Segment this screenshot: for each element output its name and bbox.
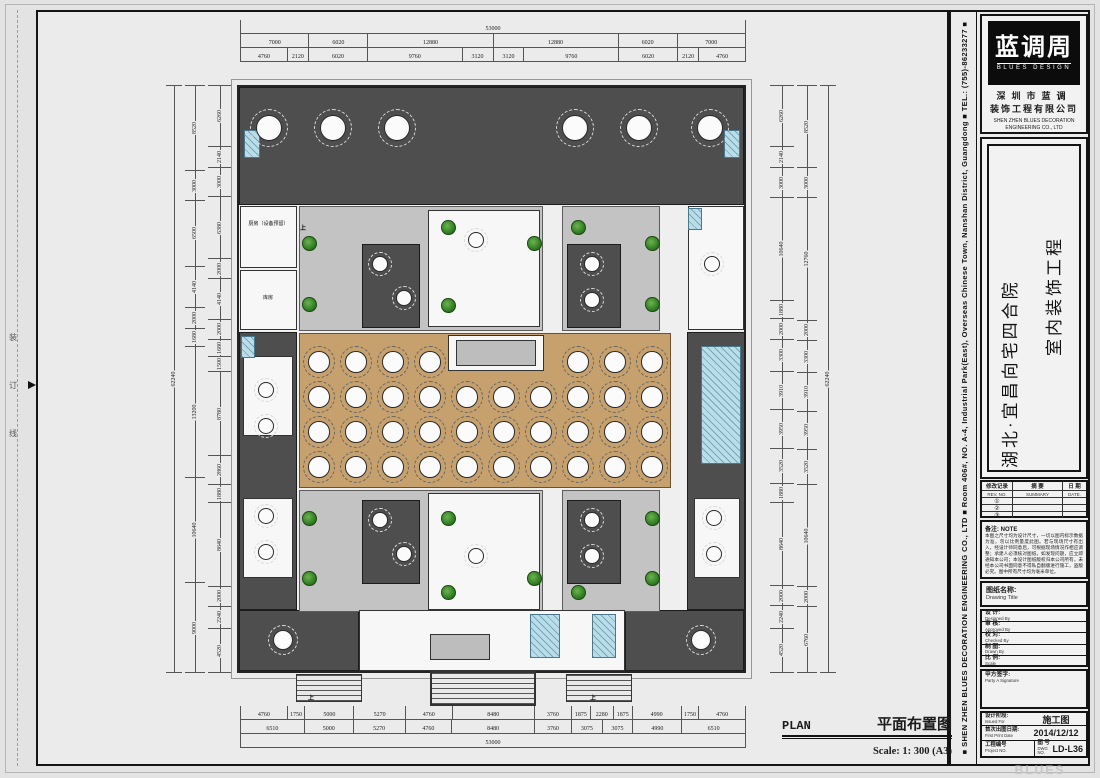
banquet-table: [700, 252, 724, 276]
banquet-table: [303, 346, 335, 378]
room-label: 厨房（设备预留）: [242, 222, 295, 228]
banquet-table: [562, 381, 594, 413]
table-top: [604, 421, 626, 443]
bathroom-east: [688, 208, 702, 230]
table-top: [530, 456, 552, 478]
table-top: [562, 115, 588, 141]
entrance-stairs: [430, 671, 536, 706]
banquet-table: [377, 451, 409, 483]
banquet-table: [340, 346, 372, 378]
banquet-table: [636, 416, 668, 448]
banquet-table: [368, 252, 392, 276]
table-top: [691, 630, 711, 650]
banquet-table: [340, 416, 372, 448]
table-top: [584, 548, 600, 564]
table-top: [372, 512, 388, 528]
banquet-table: [340, 381, 372, 413]
table-top: [384, 115, 410, 141]
banquet-table: [488, 451, 520, 483]
table-top: [419, 351, 441, 373]
table-top: [419, 386, 441, 408]
banquet-table: [451, 451, 483, 483]
banquet-table: [636, 346, 668, 378]
banquet-table: [562, 346, 594, 378]
lobby-feature: [430, 634, 490, 660]
banquet-table: [464, 544, 488, 568]
table-top: [567, 351, 589, 373]
entrance-lobby: [359, 610, 625, 671]
room-label: 上: [306, 696, 316, 703]
banquet-table: [599, 416, 631, 448]
banquet-table: [599, 451, 631, 483]
banquet-table: [691, 109, 729, 147]
banquet-table: [268, 625, 298, 655]
plant: [302, 511, 317, 526]
table-top: [258, 544, 274, 560]
banquet-table: [599, 346, 631, 378]
table-top: [641, 421, 663, 443]
rooms-south-west: [239, 610, 359, 671]
banquet-table: [599, 381, 631, 413]
banquet-table: [464, 228, 488, 252]
plant: [645, 297, 660, 312]
table-top: [641, 386, 663, 408]
banquet-table: [525, 381, 557, 413]
banquet-table: [580, 288, 604, 312]
floor-plan: 厨房（设备预留）库房上上上: [0, 0, 1100, 778]
table-top: [419, 421, 441, 443]
banquet-table: [580, 508, 604, 532]
table-top: [641, 351, 663, 373]
table-top: [345, 386, 367, 408]
banquet-table: [377, 416, 409, 448]
east-service-wet-area: [701, 346, 741, 464]
table-top: [256, 115, 282, 141]
table-top: [468, 548, 484, 564]
banquet-table: [556, 109, 594, 147]
plant: [571, 585, 586, 600]
table-top: [641, 456, 663, 478]
table-top: [308, 386, 330, 408]
plant: [441, 511, 456, 526]
bathroom-lobby-1: [530, 614, 560, 658]
banquet-table: [451, 381, 483, 413]
plant: [441, 220, 456, 235]
table-top: [567, 386, 589, 408]
banquet-table: [525, 416, 557, 448]
banquet-table: [636, 451, 668, 483]
room-label: 库房: [248, 296, 288, 302]
table-top: [584, 256, 600, 272]
bathroom-west: [241, 336, 255, 358]
banquet-table: [392, 542, 416, 566]
table-top: [493, 421, 515, 443]
plant: [302, 571, 317, 586]
room-label: 上: [588, 696, 598, 703]
bathroom-lobby-2: [592, 614, 616, 658]
banquet-table: [378, 109, 416, 147]
table-top: [372, 256, 388, 272]
table-top: [584, 512, 600, 528]
banquet-table: [254, 540, 278, 564]
room-label: 上: [299, 226, 307, 233]
banquet-table: [392, 286, 416, 310]
banquet-table: [488, 416, 520, 448]
table-top: [567, 456, 589, 478]
table-top: [530, 386, 552, 408]
table-top: [345, 351, 367, 373]
table-top: [382, 421, 404, 443]
plant: [527, 571, 542, 586]
banquet-table: [702, 542, 726, 566]
drawing-sheet: 装 订 线 ■ SHEN ZHEN BLUES DECORATION ENGIN…: [0, 0, 1100, 778]
kitchen-room: [240, 206, 297, 268]
banquet-table: [488, 381, 520, 413]
plant: [645, 236, 660, 251]
table-top: [382, 456, 404, 478]
table-top: [258, 508, 274, 524]
table-top: [396, 546, 412, 562]
banquet-table: [377, 346, 409, 378]
plant: [571, 220, 586, 235]
banquet-table: [620, 109, 658, 147]
table-top: [530, 421, 552, 443]
table-top: [456, 386, 478, 408]
banquet-table: [254, 378, 278, 402]
plant: [441, 298, 456, 313]
banquet-table: [562, 416, 594, 448]
banquet-table: [250, 109, 288, 147]
rooms-south-east: [625, 610, 744, 671]
banquet-table: [414, 416, 446, 448]
plant: [441, 585, 456, 600]
banquet-table: [314, 109, 352, 147]
table-top: [456, 456, 478, 478]
banquet-table: [525, 451, 557, 483]
entrance-stairs: [566, 674, 632, 702]
plant: [302, 297, 317, 312]
table-top: [584, 292, 600, 308]
table-top: [345, 421, 367, 443]
table-top: [308, 351, 330, 373]
banquet-table: [303, 451, 335, 483]
table-top: [706, 510, 722, 526]
table-top: [567, 421, 589, 443]
table-top: [706, 546, 722, 562]
table-top: [697, 115, 723, 141]
plant: [302, 236, 317, 251]
banquet-table: [451, 416, 483, 448]
table-top: [308, 421, 330, 443]
banquet-table: [368, 508, 392, 532]
table-top: [258, 418, 274, 434]
banquet-table: [580, 544, 604, 568]
banquet-table: [686, 625, 716, 655]
banquet-table: [414, 381, 446, 413]
table-top: [382, 386, 404, 408]
banquet-table: [303, 381, 335, 413]
table-top: [396, 290, 412, 306]
stage: [456, 340, 536, 366]
banquet-table: [414, 346, 446, 378]
banquet-rooms-north: [239, 87, 744, 205]
table-top: [258, 382, 274, 398]
banquet-table: [254, 414, 278, 438]
banquet-table: [414, 451, 446, 483]
plant: [645, 571, 660, 586]
table-top: [273, 630, 293, 650]
banquet-table: [340, 451, 372, 483]
table-top: [320, 115, 346, 141]
banquet-table: [254, 504, 278, 528]
table-top: [626, 115, 652, 141]
banquet-table: [562, 451, 594, 483]
plant: [527, 236, 542, 251]
banquet-table: [702, 506, 726, 530]
banquet-table: [303, 416, 335, 448]
table-top: [604, 351, 626, 373]
table-top: [456, 421, 478, 443]
table-top: [493, 456, 515, 478]
table-top: [704, 256, 720, 272]
banquet-table: [580, 252, 604, 276]
table-top: [345, 456, 367, 478]
table-top: [468, 232, 484, 248]
plant: [645, 511, 660, 526]
table-top: [382, 351, 404, 373]
table-top: [493, 386, 515, 408]
table-top: [419, 456, 441, 478]
table-top: [308, 456, 330, 478]
table-top: [604, 386, 626, 408]
table-top: [604, 456, 626, 478]
banquet-table: [377, 381, 409, 413]
banquet-table: [636, 381, 668, 413]
